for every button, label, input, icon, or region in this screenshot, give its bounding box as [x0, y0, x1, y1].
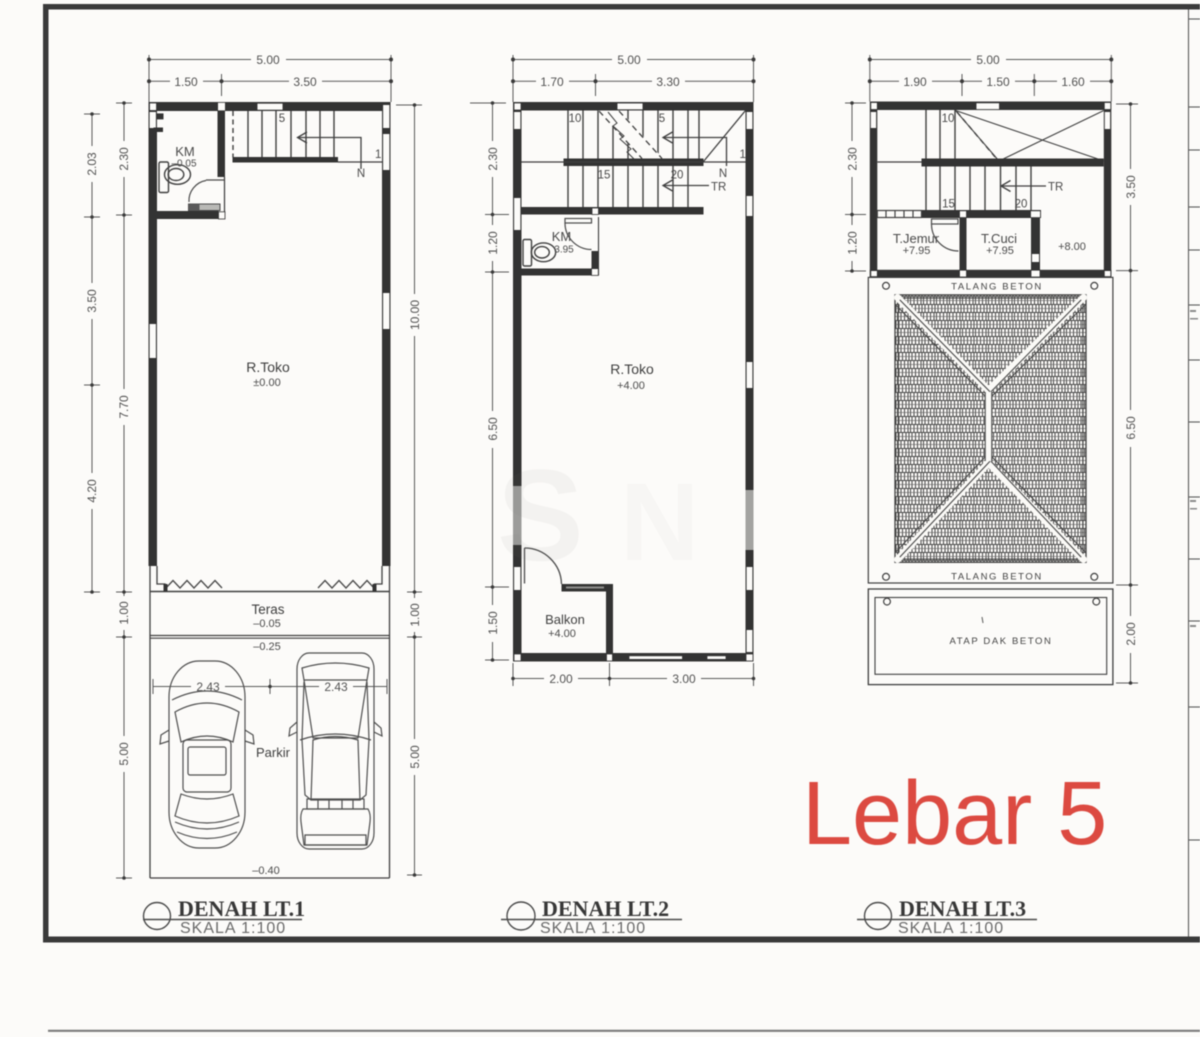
svg-text:SKALA 1:100: SKALA 1:100: [180, 920, 286, 937]
svg-text:1.00: 1.00: [408, 603, 422, 627]
svg-text:10.00: 10.00: [408, 300, 422, 330]
svg-text:6.50: 6.50: [486, 417, 500, 441]
svg-text:2.00: 2.00: [549, 672, 573, 686]
svg-text:–0.40: –0.40: [252, 865, 280, 877]
svg-text:3.30: 3.30: [656, 75, 680, 89]
svg-text:4.20: 4.20: [85, 479, 99, 503]
svg-text:5.00: 5.00: [617, 53, 641, 67]
svg-text:1.60: 1.60: [1061, 75, 1085, 89]
svg-text:1: 1: [740, 149, 746, 161]
svg-text:1.20: 1.20: [486, 231, 500, 255]
svg-text:10: 10: [569, 113, 582, 125]
svg-text:2.03: 2.03: [85, 152, 99, 176]
svg-text:N: N: [719, 168, 727, 180]
svg-text:+4.00: +4.00: [617, 380, 645, 392]
svg-text:1.00: 1.00: [117, 601, 131, 625]
svg-text:5: 5: [279, 113, 285, 125]
svg-text:5.00: 5.00: [256, 53, 280, 67]
svg-text:3.50: 3.50: [85, 289, 99, 313]
svg-text:KM: KM: [175, 144, 195, 159]
svg-text:DENAH LT.3: DENAH LT.3: [899, 896, 1026, 921]
svg-text:+7.95: +7.95: [986, 245, 1014, 257]
svg-text:1.70: 1.70: [540, 75, 564, 89]
svg-text:1.50: 1.50: [486, 611, 500, 635]
svg-text:20: 20: [671, 170, 684, 182]
svg-text:DENAH LT.1: DENAH LT.1: [178, 896, 305, 921]
svg-text:TALANG BETON: TALANG BETON: [951, 282, 1043, 293]
svg-text:1.20: 1.20: [846, 231, 860, 255]
svg-text:–0.25: –0.25: [253, 641, 281, 653]
svg-text:T.Cuci: T.Cuci: [981, 231, 1017, 246]
svg-text:SKALA 1:100: SKALA 1:100: [540, 920, 646, 937]
svg-text:DENAH LT.2: DENAH LT.2: [542, 896, 669, 921]
svg-text:Teras: Teras: [251, 602, 284, 617]
svg-text:2.30: 2.30: [117, 147, 131, 171]
svg-text:N: N: [620, 461, 699, 584]
svg-text:S: S: [497, 442, 584, 588]
svg-text:2.30: 2.30: [846, 147, 860, 171]
svg-text:15: 15: [942, 199, 955, 211]
svg-text:1.50: 1.50: [174, 75, 198, 89]
svg-text:1.90: 1.90: [903, 75, 927, 89]
svg-text:TALANG BETON: TALANG BETON: [951, 572, 1043, 583]
svg-text:Balkon: Balkon: [545, 612, 585, 627]
svg-text:3.00: 3.00: [672, 672, 696, 686]
svg-text:1.50: 1.50: [986, 75, 1010, 89]
svg-text:5.00: 5.00: [408, 745, 422, 769]
svg-text:2.43: 2.43: [324, 680, 348, 694]
svg-text:R.Toko: R.Toko: [610, 361, 654, 377]
svg-text:3.95: 3.95: [554, 245, 574, 256]
svg-text:6.50: 6.50: [1124, 416, 1138, 440]
svg-text:–0.05: –0.05: [253, 618, 281, 630]
svg-text:R.Toko: R.Toko: [246, 359, 290, 375]
svg-text:3.50: 3.50: [293, 75, 317, 89]
svg-text:TR: TR: [711, 182, 726, 194]
svg-text:Lebar 5: Lebar 5: [802, 764, 1107, 864]
svg-text:N: N: [357, 168, 365, 180]
svg-text:1: 1: [375, 149, 381, 161]
svg-text:5: 5: [659, 113, 665, 125]
svg-text:10: 10: [942, 113, 955, 125]
svg-text:15: 15: [598, 170, 611, 182]
svg-text:T.Jemur: T.Jemur: [893, 231, 940, 246]
svg-text:3.50: 3.50: [1124, 175, 1138, 199]
svg-text:+7.95: +7.95: [903, 245, 931, 257]
svg-text:+4.00: +4.00: [548, 628, 576, 640]
svg-text:TR: TR: [1048, 182, 1063, 194]
svg-text:SKALA 1:100: SKALA 1:100: [898, 920, 1004, 937]
svg-text:ATAP DAK BETON: ATAP DAK BETON: [950, 636, 1053, 647]
svg-text:7.70: 7.70: [117, 395, 131, 419]
svg-text:2.30: 2.30: [486, 147, 500, 171]
svg-text:Parkir: Parkir: [256, 745, 291, 760]
svg-text:KM: KM: [552, 229, 572, 244]
svg-text:2.00: 2.00: [1124, 622, 1138, 646]
svg-text:+8.00: +8.00: [1058, 241, 1086, 253]
svg-text:–0.05: –0.05: [171, 159, 196, 170]
svg-text:±0.00: ±0.00: [253, 377, 280, 389]
svg-text:5.00: 5.00: [976, 53, 1000, 67]
svg-text:5.00: 5.00: [117, 742, 131, 766]
svg-text:20: 20: [1015, 199, 1028, 211]
